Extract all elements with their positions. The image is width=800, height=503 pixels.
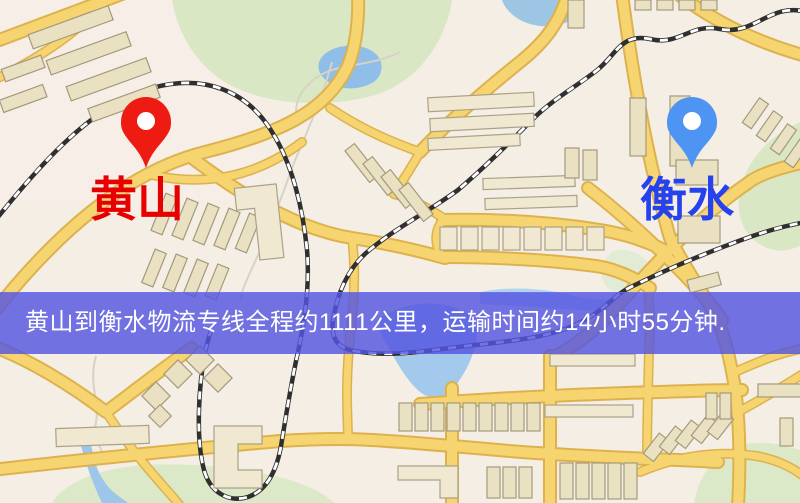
destination-label: 衡水 [640,178,734,225]
map-background [0,0,800,503]
route-info-banner: 黄山到衡水物流专线全程约1111公里，运输时间约14小时55分钟. [0,292,800,354]
map-view: 黄山 衡水 黄山到衡水物流专线全程约1111公里，运输时间约14小时55分钟. [0,0,800,503]
origin-label: 黄山 [90,178,184,225]
route-info-text: 黄山到衡水物流专线全程约1111公里，运输时间约14小时55分钟. [0,292,800,354]
